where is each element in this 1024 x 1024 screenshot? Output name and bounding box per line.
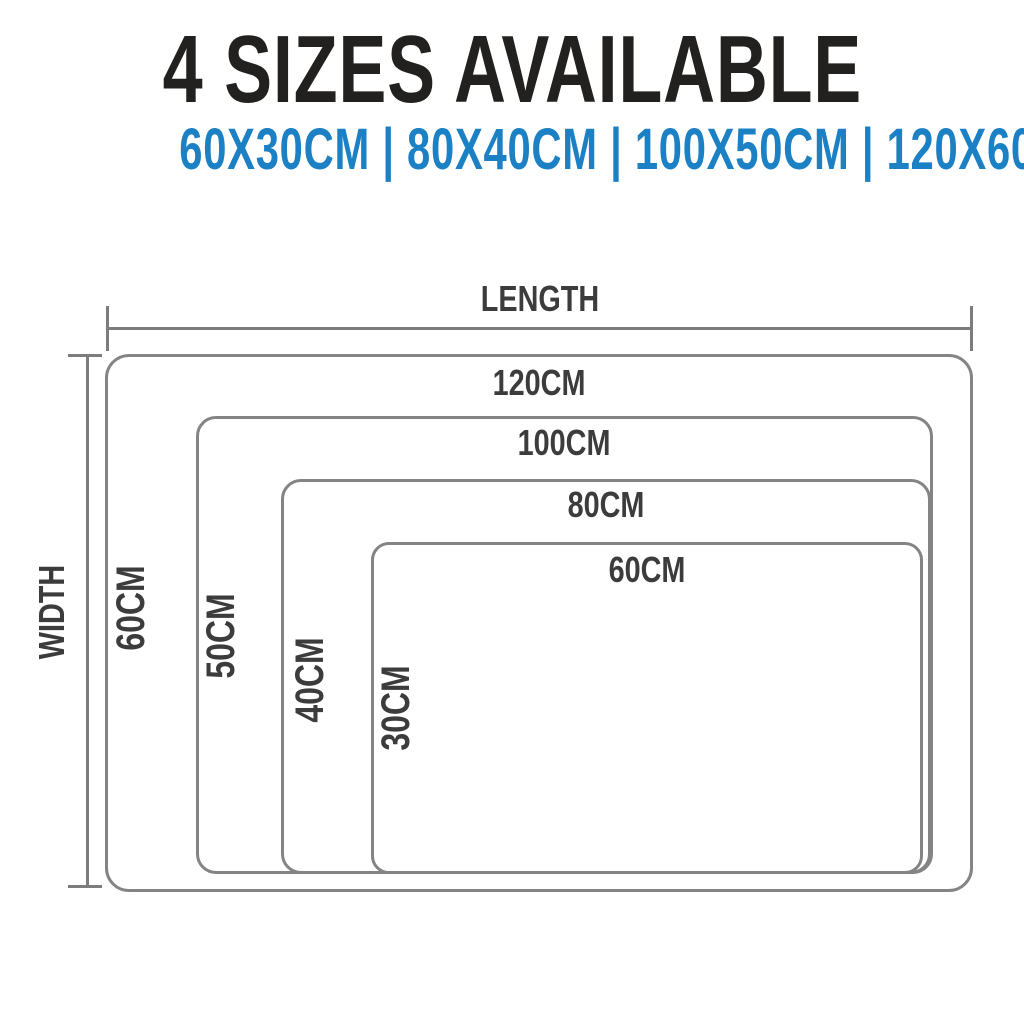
length-dimension-line	[107, 327, 973, 330]
size-rect-60x30	[371, 542, 923, 874]
width-dimension-line	[86, 355, 89, 888]
rect-width-label-40cm: 40CM	[290, 637, 330, 722]
width-axis-label: WIDTH	[34, 565, 70, 659]
rect-width-label-60cm: 60CM	[111, 565, 151, 650]
page-title-text: 4 SIZES AVAILABLE	[162, 22, 861, 118]
rect-length-label-80cm: 80CM	[281, 487, 931, 523]
width-dimension-tick-top	[68, 354, 102, 357]
sizes-subtitle: 60X30CM | 80X40CM | 100X50CM | 120X60CM	[0, 121, 1024, 179]
sizes-subtitle-text: 60X30CM | 80X40CM | 100X50CM | 120X60CM	[179, 121, 1024, 179]
length-axis-label: LENGTH	[107, 281, 973, 317]
rect-width-label-30cm: 30CM	[376, 665, 416, 750]
length-dimension-tick-right	[970, 306, 973, 351]
length-dimension-tick-left	[106, 306, 109, 351]
rect-width-label-50cm: 50CM	[201, 593, 241, 678]
rect-length-label-60cm: 60CM	[371, 552, 923, 588]
infographic-canvas: 4 SIZES AVAILABLE 60X30CM | 80X40CM | 10…	[0, 0, 1024, 1024]
page-title: 4 SIZES AVAILABLE	[0, 22, 1024, 118]
rect-length-label-100cm: 100CM	[196, 425, 933, 461]
width-dimension-tick-bottom	[68, 885, 102, 888]
rect-length-label-120cm: 120CM	[105, 365, 973, 401]
